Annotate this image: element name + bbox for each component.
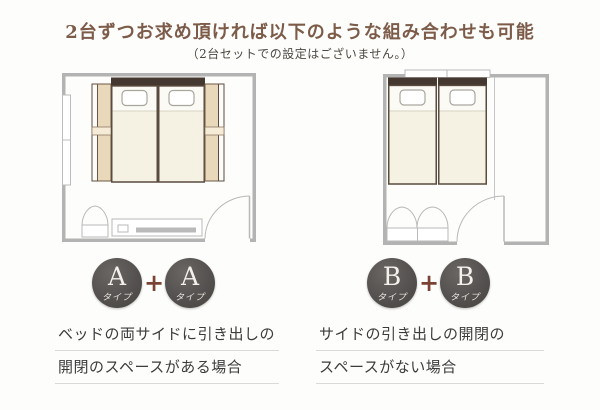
closet-bifold-icon (387, 207, 448, 241)
plus-sign: + (142, 268, 166, 297)
plus-sign: + (417, 268, 441, 297)
type-badge: B タイプ (367, 258, 417, 308)
page-subtitle: （2台セットでの設定はございません。） (0, 45, 600, 62)
caption-right: サイドの引き出しの開閉の スペースがない場合 (316, 318, 544, 384)
caption-left: ベッドの両サイドに引き出しの 開閉のスペースがある場合 (55, 318, 279, 384)
window-icon (405, 70, 490, 78)
floorplan-left (62, 73, 256, 242)
page-title: 2台ずつお求め頂ければ以下のような組み合わせも可能 (0, 18, 600, 44)
product-layout-figure: 2台ずつお求め頂ければ以下のような組み合わせも可能 （2台セットでの設定はござい… (0, 0, 600, 410)
caption-line: 開閉のスペースがある場合 (55, 351, 279, 384)
type-sub-label: タイプ (377, 290, 407, 303)
window-icon (63, 95, 71, 185)
tv-board-icon (112, 219, 202, 236)
floorplan-right (383, 69, 549, 245)
closet-bifold-icon (82, 206, 108, 237)
type-letter: A (181, 264, 199, 289)
type-letter: B (383, 264, 401, 289)
type-badge: B タイプ (440, 258, 490, 308)
type-badge: A タイプ (92, 258, 142, 308)
type-letter: A (108, 264, 126, 289)
type-sub-label: タイプ (175, 290, 205, 303)
door-swing-icon (457, 196, 504, 242)
type-sub-label: タイプ (102, 290, 132, 303)
drawer-space-left-icon (92, 84, 111, 181)
caption-line: ベッドの両サイドに引き出しの (55, 318, 279, 351)
bed-topview-icon (438, 78, 487, 185)
caption-line: サイドの引き出しの開閉の (316, 318, 544, 351)
type-letter: B (456, 264, 474, 289)
bed-topview-icon (111, 78, 158, 183)
bed-topview-icon (158, 78, 205, 183)
type-badge: A タイプ (165, 258, 215, 308)
door-swing-icon (205, 196, 250, 239)
type-sub-label: タイプ (450, 290, 480, 303)
bed-topview-icon (388, 78, 437, 185)
drawer-space-right-icon (205, 84, 224, 181)
caption-line: スペースがない場合 (316, 351, 544, 384)
